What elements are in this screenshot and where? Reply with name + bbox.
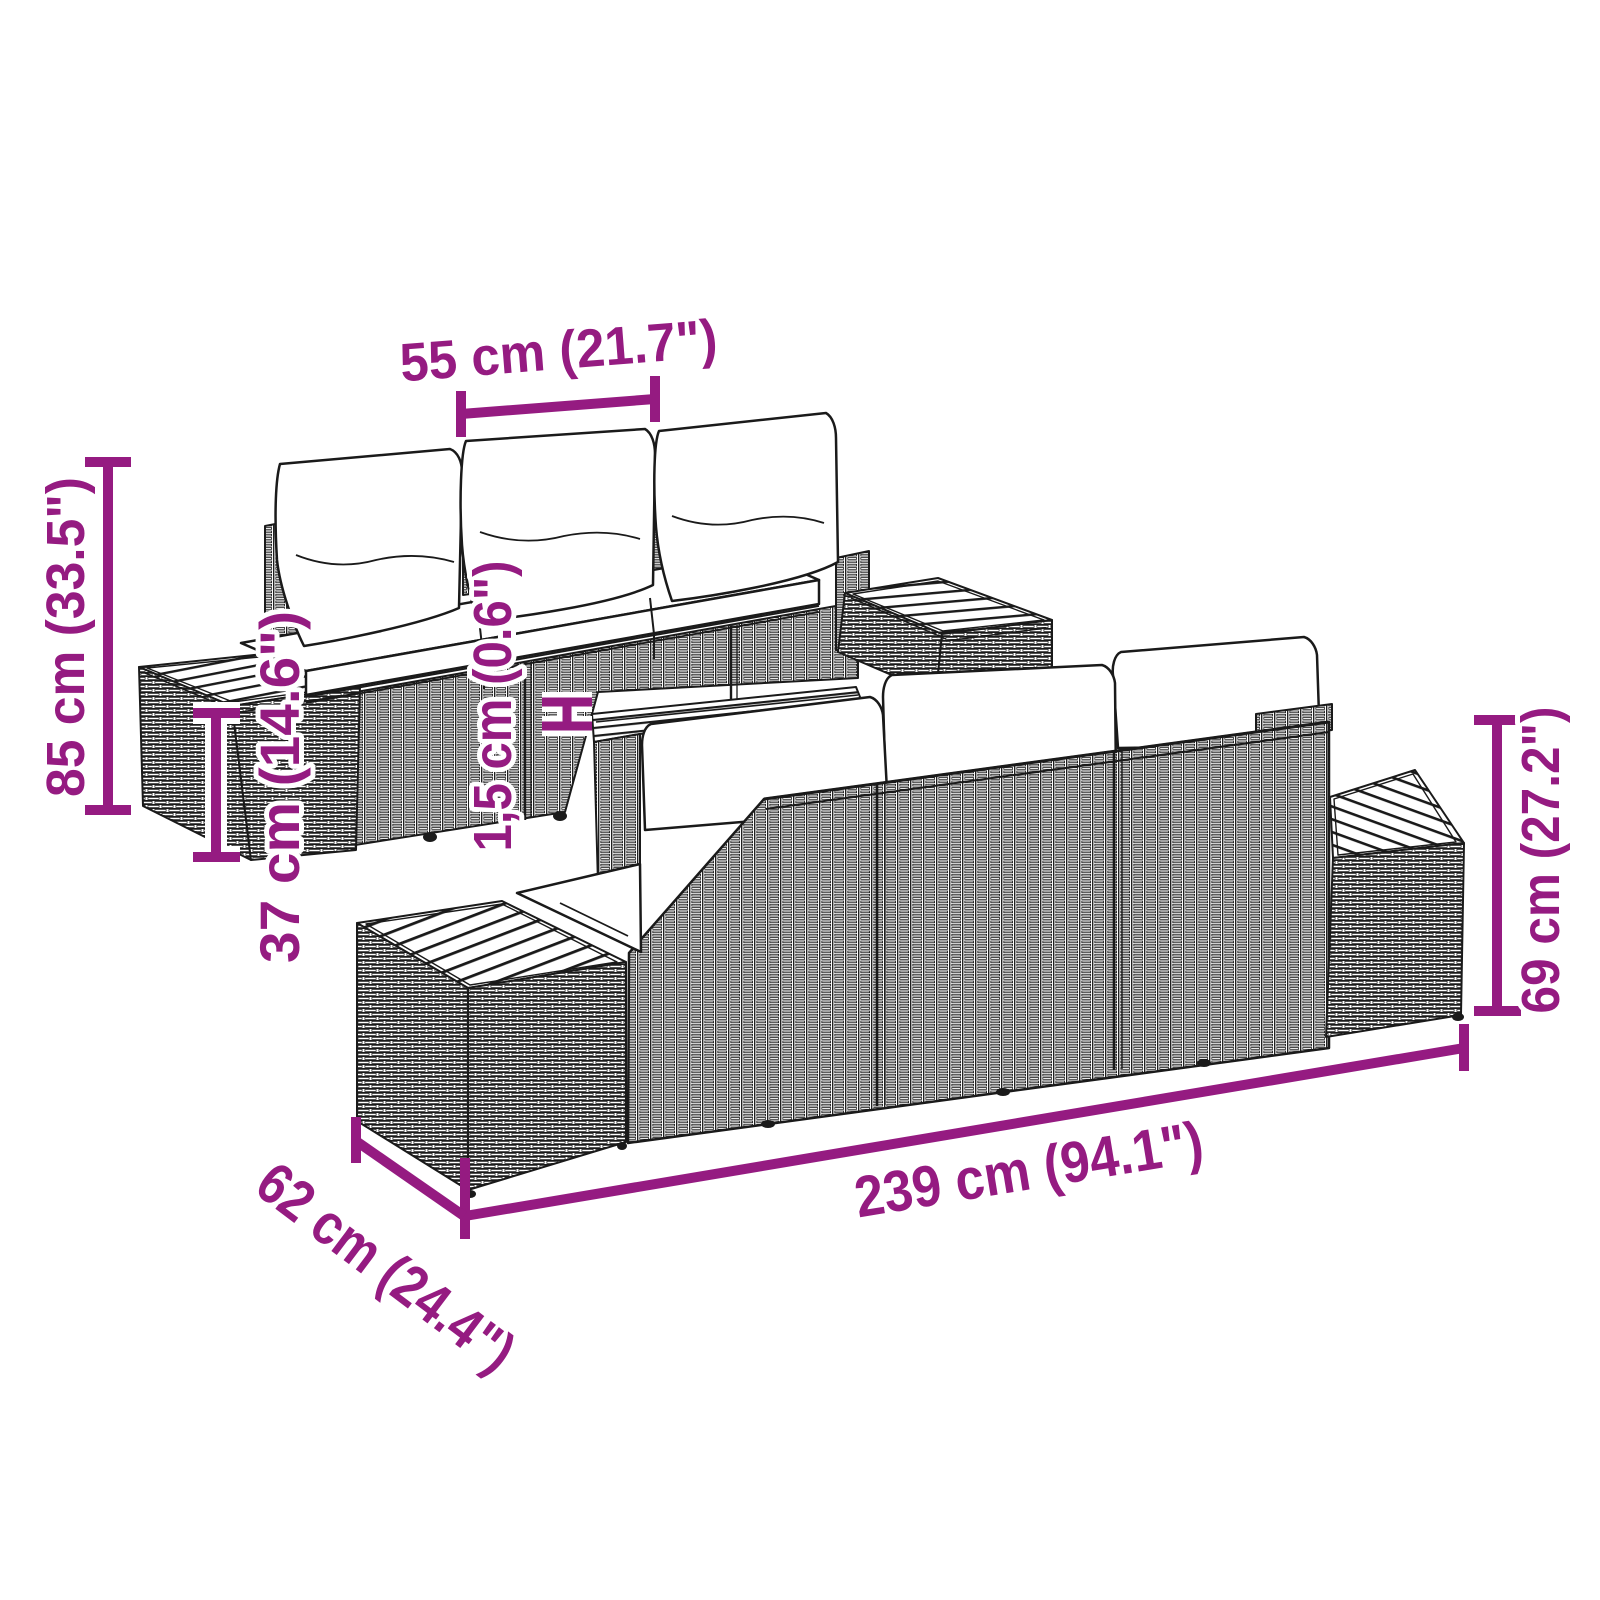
svg-text:85 cm (33.5"): 85 cm (33.5"): [36, 477, 96, 797]
svg-text:37 cm (14.6"): 37 cm (14.6"): [248, 611, 311, 963]
svg-text:1,5 cm (0.6"): 1,5 cm (0.6"): [463, 561, 523, 852]
svg-text:69 cm (27.2"): 69 cm (27.2"): [1511, 707, 1571, 1014]
